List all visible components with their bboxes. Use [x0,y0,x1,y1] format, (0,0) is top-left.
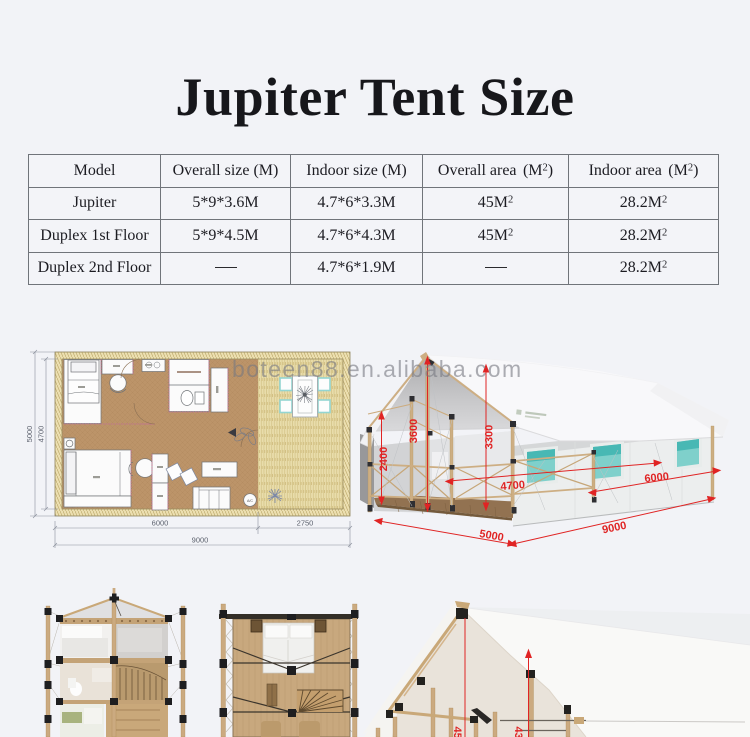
svg-text:4700: 4700 [500,479,525,493]
svg-text:2400: 2400 [378,447,390,471]
svg-text:5000: 5000 [25,426,34,443]
svg-text:4500: 4500 [451,727,463,737]
svg-text:9000: 9000 [192,536,209,545]
svg-text:4300: 4300 [512,727,524,737]
svg-text:2750: 2750 [297,519,314,528]
svg-text:6000: 6000 [152,519,169,528]
svg-text:A/C: A/C [247,499,253,503]
svg-text:6000: 6000 [644,471,670,485]
svg-text:3600: 3600 [408,419,420,443]
svg-text:9000: 9000 [601,520,627,537]
svg-text:3300: 3300 [484,425,496,449]
svg-text:4700: 4700 [37,426,46,443]
svg-text:5000: 5000 [478,528,504,544]
